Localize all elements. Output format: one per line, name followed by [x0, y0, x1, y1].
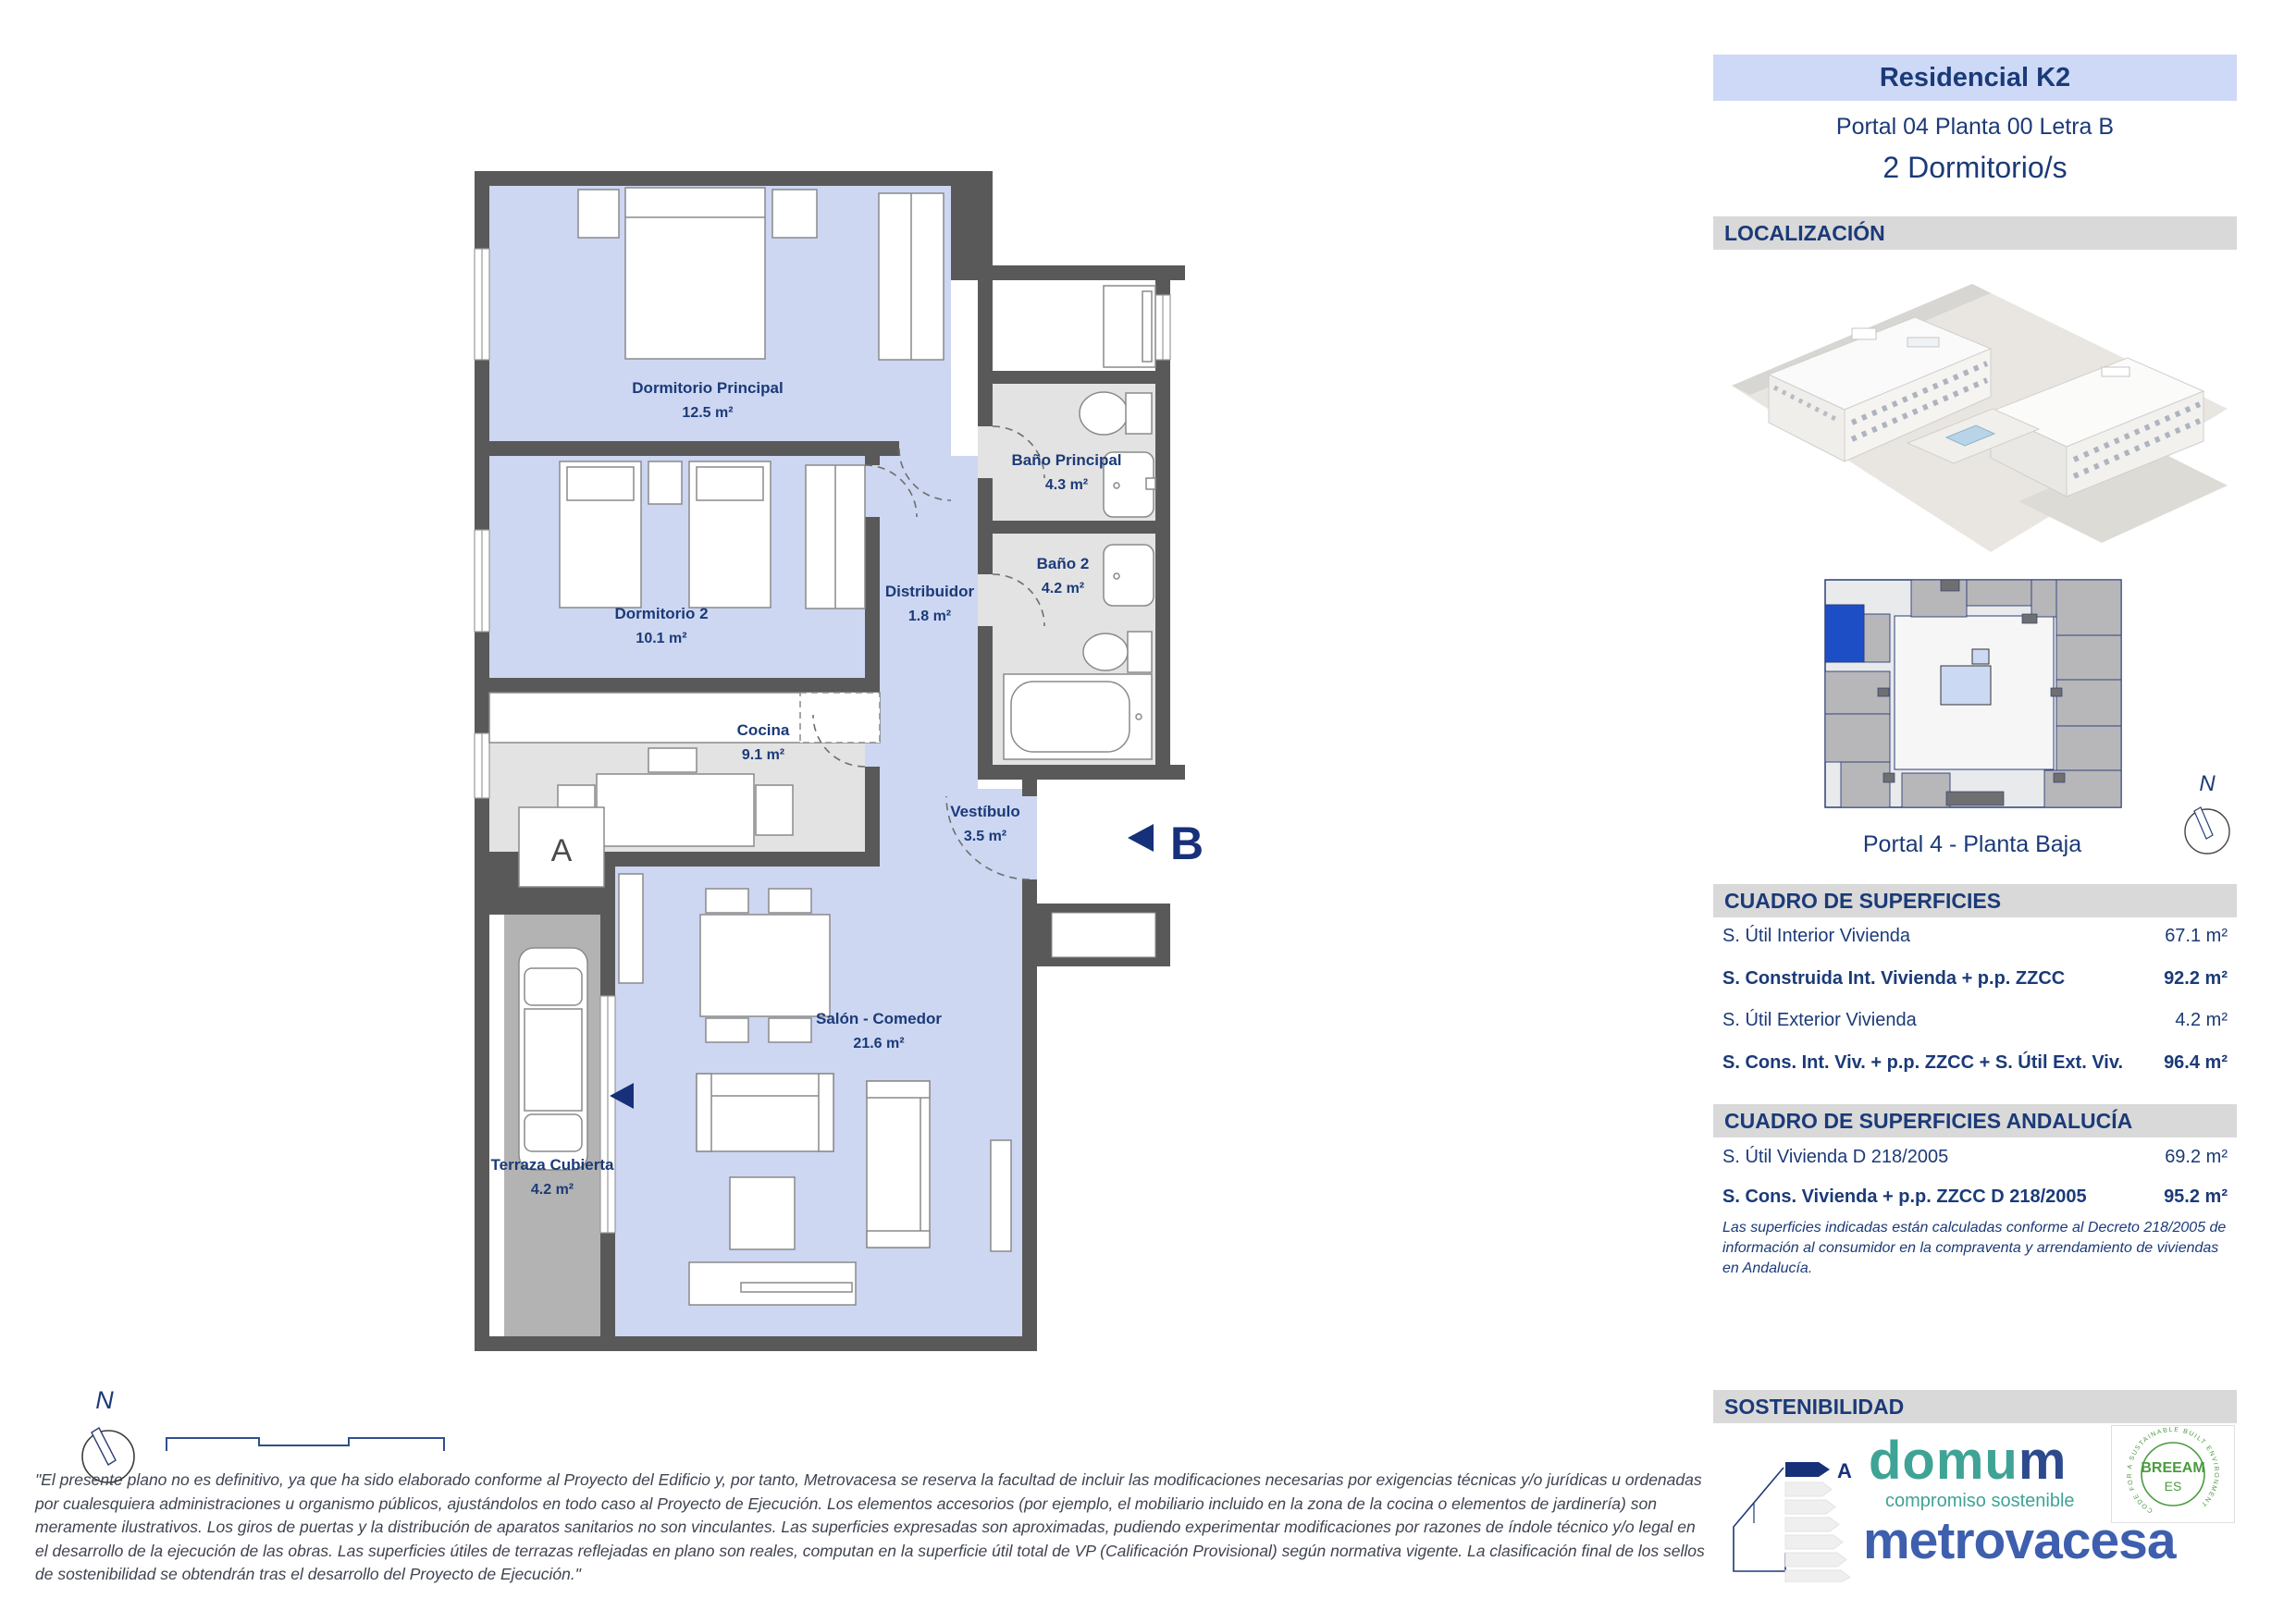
row-value: 95.2 m²	[2164, 1187, 2228, 1208]
unit-subtitle: Portal 04 Planta 00 Letra B	[1713, 114, 2237, 141]
keyplan-north-label: N	[2199, 771, 2216, 796]
north-label: N	[95, 1386, 114, 1414]
table-row: S. Cons. Vivienda + p.p. ZZCC D 218/2005…	[1722, 1187, 2228, 1208]
row-label: S. Cons. Vivienda + p.p. ZZCC D 218/2005	[1722, 1187, 2087, 1208]
svg-text:12.5 m²: 12.5 m²	[682, 405, 733, 421]
disclaimer-text: "El presente plano no es definitivo, ya …	[35, 1469, 1710, 1587]
label-dormitorio-2: Dormitorio 2	[614, 605, 708, 622]
row-label: S. Útil Interior Vivienda	[1722, 926, 1910, 947]
floor-plan-sheet: Dormitorio Principal 12.5 m² Dormitorio …	[0, 0, 2296, 1623]
breeam-logo-box: BREEAM ES CODE FOR A SUSTAINABLE BUILT E…	[2111, 1425, 2235, 1523]
metrovacesa-logo: metrovacesa	[1863, 1510, 2237, 1571]
keyplan-caption: Portal 4 - Planta Baja	[1769, 831, 2176, 858]
row-label: S. Construida Int. Vivienda + p.p. ZZCC	[1722, 968, 2065, 990]
label-salon-comedor: Salón - Comedor	[816, 1010, 942, 1027]
location-render-image	[1713, 256, 2237, 566]
svg-text:domum: domum	[1869, 1431, 2067, 1491]
row-value: 69.2 m²	[2165, 1147, 2228, 1168]
label-bano-2: Baño 2	[1037, 555, 1090, 572]
label-terraza-cubierta: Terraza Cubierta	[491, 1156, 614, 1174]
table-row: S. Útil Interior Vivienda 67.1 m²	[1722, 926, 2228, 947]
section-header-sostenibilidad: SOSTENIBILIDAD	[1713, 1390, 2237, 1423]
row-label: S. Útil Vivienda D 218/2005	[1722, 1147, 1948, 1168]
info-panel: Residencial K2 Portal 04 Planta 00 Letra…	[1713, 51, 2237, 1609]
section-header-superficies-andalucia: CUADRO DE SUPERFICIES ANDALUCÍA	[1713, 1104, 2237, 1137]
section-header-localizacion: LOCALIZACIÓN	[1713, 216, 2237, 250]
row-label: S. Cons. Int. Viv. + p.p. ZZCC + S. Útil…	[1722, 1052, 2123, 1074]
table-row: S. Útil Vivienda D 218/2005 69.2 m²	[1722, 1147, 2228, 1168]
label-dormitorio-principal: Dormitorio Principal	[632, 379, 783, 397]
entry-niche	[1052, 913, 1155, 957]
svg-text:4.3 m²: 4.3 m²	[1045, 477, 1088, 493]
label-distribuidor: Distribuidor	[885, 583, 975, 600]
row-value: 67.1 m²	[2165, 926, 2228, 947]
svg-text:1.8 m²: 1.8 m²	[908, 609, 951, 624]
entry-marker-b: B	[1170, 818, 1204, 869]
svg-text:4.2 m²: 4.2 m²	[1042, 581, 1084, 596]
row-value: 4.2 m²	[2175, 1010, 2228, 1031]
svg-text:21.6 m²: 21.6 m²	[853, 1036, 904, 1051]
table-row: S. Construida Int. Vivienda + p.p. ZZCC …	[1722, 968, 2228, 990]
section-marker-a: A	[551, 833, 573, 868]
table-row: S. Útil Exterior Vivienda 4.2 m²	[1722, 1010, 2228, 1031]
label-cocina: Cocina	[737, 721, 790, 739]
scale-bar	[162, 1429, 467, 1462]
bedrooms-subtitle: 2 Dormitorio/s	[1713, 151, 2237, 185]
decree-note: Las superficies indicadas están calculad…	[1722, 1218, 2229, 1279]
svg-text:4.2 m²: 4.2 m²	[531, 1182, 574, 1198]
label-vestibulo: Vestíbulo	[950, 803, 1020, 820]
svg-text:BREEAM: BREEAM	[2141, 1460, 2204, 1476]
svg-text:10.1 m²: 10.1 m²	[636, 631, 686, 646]
domum-logo: domum compromiso sostenible	[1869, 1431, 2100, 1518]
row-value: 96.4 m²	[2164, 1052, 2228, 1074]
svg-text:ES: ES	[2165, 1479, 2182, 1494]
row-value: 92.2 m²	[2164, 968, 2228, 990]
keyplan-highlighted-unit	[1825, 605, 1864, 662]
floor-plan: Dormitorio Principal 12.5 m² Dormitorio …	[467, 160, 1281, 1399]
table-row: S. Cons. Int. Viv. + p.p. ZZCC + S. Útil…	[1722, 1052, 2228, 1074]
row-label: S. Útil Exterior Vivienda	[1722, 1010, 1917, 1031]
project-title-banner: Residencial K2	[1713, 55, 2237, 101]
energy-class-label: A	[1837, 1459, 1852, 1482]
domum-tagline: compromiso sostenible	[1885, 1491, 2075, 1511]
entry-arrow-icon	[1128, 824, 1154, 852]
svg-text:3.5 m²: 3.5 m²	[964, 829, 1006, 844]
keyplan-north-compass-icon: N	[2174, 768, 2240, 867]
breeam-logo: BREEAM ES CODE FOR A SUSTAINABLE BUILT E…	[2112, 1426, 2234, 1522]
keyplan	[1822, 577, 2124, 810]
svg-text:9.1 m²: 9.1 m²	[742, 747, 784, 763]
energy-rating-icon: A	[1726, 1434, 1865, 1582]
section-header-superficies: CUADRO DE SUPERFICIES	[1713, 884, 2237, 917]
label-bano-principal: Baño Principal	[1011, 451, 1121, 469]
